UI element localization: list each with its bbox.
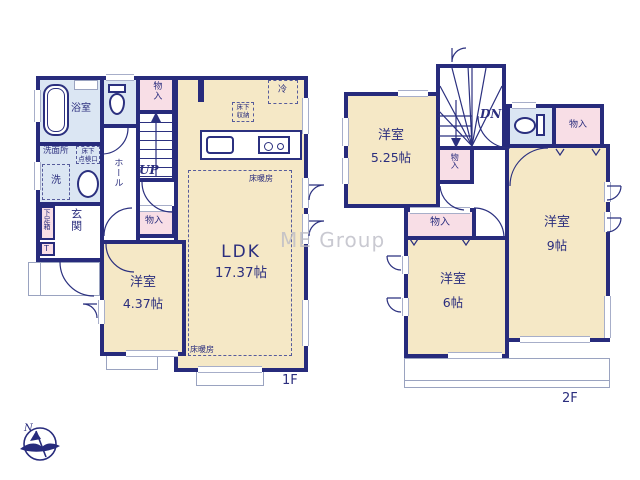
compass-icon: N bbox=[20, 423, 60, 460]
room-size-bedroom-2f-b: 9帖 bbox=[539, 239, 575, 253]
casement-arc bbox=[309, 185, 324, 200]
door-arc-bedroom-1f bbox=[106, 244, 134, 272]
stairs-up-arrowhead bbox=[151, 112, 161, 122]
floor-label-1f: 1F bbox=[282, 374, 298, 389]
room-label-bedroom-2f-a: 洋室 bbox=[366, 129, 416, 144]
room-label-hall: ホール bbox=[112, 158, 122, 188]
room-label-genkan: 玄関 bbox=[69, 208, 82, 232]
stairs-2f-fan bbox=[438, 66, 502, 146]
hanger-mark bbox=[410, 239, 470, 245]
stairs-down-arrowhead bbox=[451, 138, 461, 148]
label-closet-1f-a: 物入 bbox=[151, 81, 161, 101]
compass-north-label: N bbox=[23, 423, 34, 434]
room-label-ldk: LDK bbox=[197, 243, 285, 263]
room-size-bedroom-1f: 4.37帖 bbox=[114, 297, 172, 311]
room-label-bedroom-2f-c: 洋室 bbox=[428, 273, 478, 288]
door-arc-bedroom-b bbox=[510, 148, 548, 186]
label-fridge: 冷 bbox=[278, 85, 287, 95]
label-floor-storage: 床下 収納 bbox=[233, 104, 253, 120]
label-closet-1f-b: 物入 bbox=[145, 216, 163, 226]
label-floor-storage-line2: 収納 bbox=[233, 112, 253, 120]
label-closet-2f-low: 物入 bbox=[416, 217, 464, 229]
label-shoebox-sub: T bbox=[44, 244, 49, 253]
label-shoebox: 下足箱 bbox=[43, 209, 51, 230]
casement-arc bbox=[607, 218, 621, 232]
casement-arc bbox=[83, 304, 97, 318]
label-floor-heating-a: 床暖房 bbox=[249, 174, 273, 183]
room-size-bedroom-2f-c: 6帖 bbox=[435, 296, 471, 310]
label-laundry: 洗 bbox=[51, 175, 61, 187]
casement-arc bbox=[607, 186, 621, 200]
room-label-bedroom-2f-b: 洋室 bbox=[532, 216, 582, 231]
label-closet-2f-mid: 物入 bbox=[450, 153, 459, 169]
label-floor-heating-b: 床暖房 bbox=[190, 345, 214, 354]
label-stairs-up: UP bbox=[139, 164, 159, 178]
door-arc-bedroom-a bbox=[440, 186, 464, 210]
door-arc-bedroom-c bbox=[474, 208, 504, 238]
floor-label-2f: 2F bbox=[562, 392, 578, 407]
label-stairs-dn: DN bbox=[480, 108, 501, 122]
label-closet-2f-top: 物入 bbox=[558, 120, 598, 130]
room-size-ldk: 17.37帖 bbox=[197, 266, 285, 282]
casement-arc bbox=[387, 256, 401, 270]
floor-plan: N 浴室 洗面所 床下 点検口 洗 ホール 玄関 下足箱 T 物入 物入 UP … bbox=[0, 0, 640, 480]
room-label-bath: 浴室 bbox=[71, 103, 91, 115]
label-inspection: 床下 点検口 bbox=[77, 148, 99, 164]
room-label-bedroom-1f: 洋室 bbox=[118, 276, 168, 291]
door-arc-porch bbox=[60, 262, 94, 296]
room-label-washroom: 洗面所 bbox=[43, 147, 69, 157]
room-size-bedroom-2f-a: 5.25帖 bbox=[362, 151, 420, 165]
label-inspection-line2: 点検口 bbox=[77, 156, 99, 164]
door-arc-hall-genkan bbox=[104, 208, 132, 236]
door-arc-stairs-ldk bbox=[142, 182, 172, 212]
casement-arc bbox=[387, 298, 401, 312]
watermark: ME Group bbox=[280, 228, 385, 252]
door-arc-stairs-top bbox=[452, 48, 466, 62]
door-arc-toilet-1f bbox=[102, 128, 128, 154]
hanger-mark bbox=[556, 149, 600, 155]
